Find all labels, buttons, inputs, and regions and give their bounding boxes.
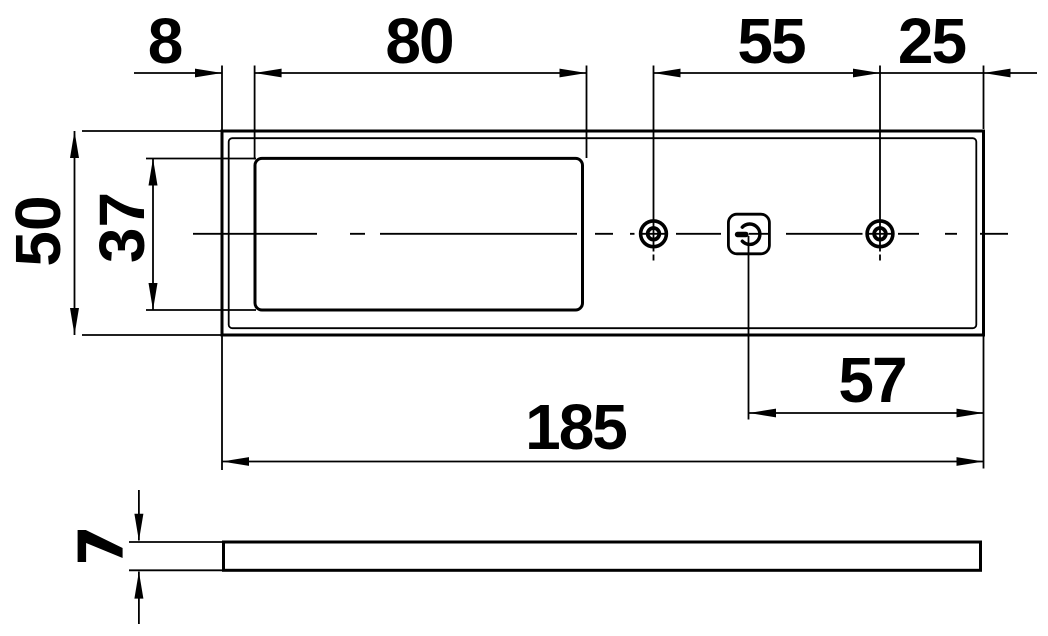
svg-text:37: 37: [86, 192, 158, 263]
svg-text:50: 50: [2, 195, 74, 266]
svg-text:8: 8: [148, 5, 182, 77]
svg-text:57: 57: [838, 344, 905, 416]
svg-text:80: 80: [385, 5, 452, 77]
svg-text:25: 25: [898, 5, 966, 77]
svg-text:55: 55: [737, 5, 805, 77]
svg-text:185: 185: [525, 391, 626, 463]
